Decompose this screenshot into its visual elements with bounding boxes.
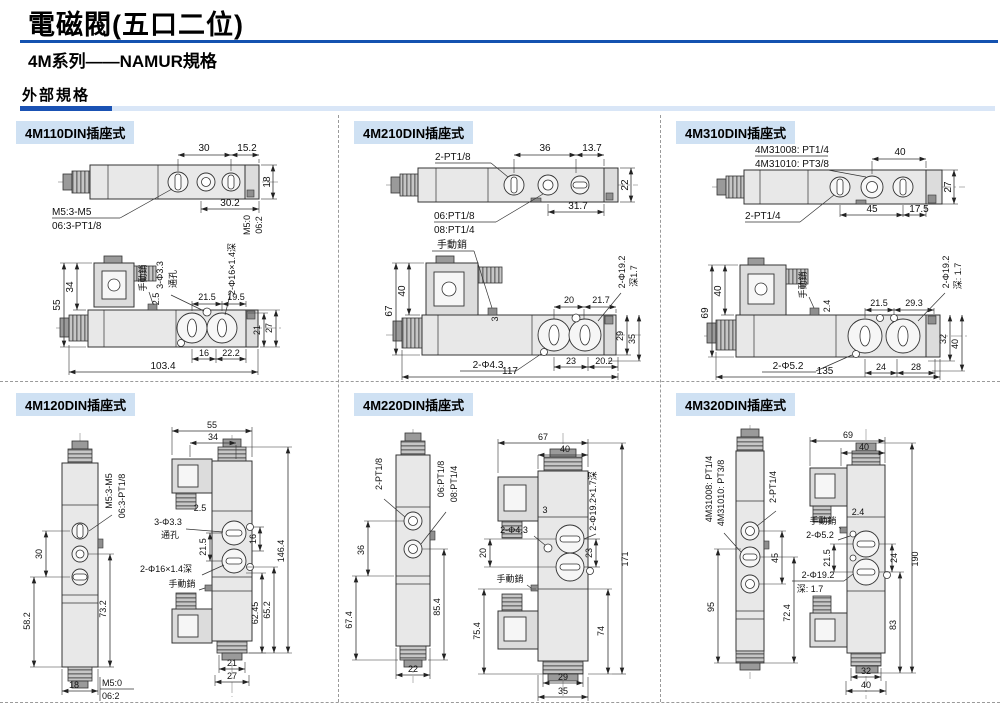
- panel-label-4M110: 4M110DIN插座式: [16, 121, 134, 144]
- counterbore-depth-label: 深1.7: [629, 265, 639, 287]
- dim: 65.2: [262, 601, 272, 619]
- dim: 73.2: [98, 600, 108, 618]
- p5-front-view: 2-PT1/8 06:PT1/8 08:PT1/4 36 67.4 85.4 2…: [344, 429, 459, 683]
- dim: 146.4: [276, 540, 286, 563]
- dim: 3: [490, 316, 500, 321]
- hole-label: 2-Φ5.2: [773, 361, 804, 372]
- port-label: 4M31010: PT3/8: [755, 159, 829, 170]
- counterbore-depth-label: 深: 1.7: [797, 584, 824, 594]
- dim: 62.45: [250, 602, 260, 625]
- dim: 34: [65, 281, 76, 293]
- dim: 16: [199, 348, 209, 358]
- port-label: 06:PT1/8: [434, 211, 475, 222]
- dim: 21.5: [198, 292, 216, 302]
- panel-4M320: 4M31008: PT1/4 4M31010: PT3/8 2-PT1/4 45…: [660, 381, 1000, 703]
- counterbore-label: 2-Φ16×1.4深: [140, 564, 192, 574]
- counterbore-label: 2-Φ16×1.4深: [227, 243, 237, 295]
- panel-label-4M310: 4M310DIN插座式: [676, 121, 795, 144]
- dim: 29.3: [905, 298, 923, 308]
- dim: 23: [566, 356, 576, 366]
- dim: 21.5: [822, 549, 832, 567]
- dim: 36: [539, 143, 551, 154]
- port-label: M5:3-M5: [104, 473, 114, 509]
- dim: 21.5: [870, 298, 888, 308]
- dim: 67: [538, 432, 548, 442]
- dim: 17.5: [909, 204, 929, 215]
- port-label: 2-PT1/4: [745, 211, 781, 222]
- dim: 15.2: [237, 143, 257, 154]
- dim: 3: [542, 505, 547, 515]
- dim: 40: [861, 680, 871, 690]
- port-label: 2-PT1/4: [768, 471, 778, 503]
- dim: 55: [207, 420, 217, 430]
- port-label: 06:2: [254, 216, 264, 234]
- hole-label: 通孔: [168, 270, 178, 288]
- dim: 85.4: [432, 598, 442, 616]
- dim: 2.4: [852, 507, 865, 517]
- dim: 27: [264, 323, 274, 333]
- dim: 29: [558, 672, 568, 682]
- port-label: 06:3-PT1/8: [52, 221, 102, 232]
- counterbore-label: 2-Φ19.2: [802, 570, 835, 580]
- panel-label-4M320: 4M320DIN插座式: [676, 393, 795, 416]
- panel-label-4M210: 4M210DIN插座式: [354, 121, 473, 144]
- port-label: 2-PT1/8: [374, 458, 384, 490]
- dim: 21: [252, 325, 262, 335]
- dim: 22: [408, 664, 418, 674]
- dim: 103.4: [150, 361, 175, 372]
- p6-side-view: 69 40 190 2.4 手動銷 2-Φ5.2 21.5 24 83 2-Φ1…: [792, 429, 920, 699]
- dim: 35: [558, 686, 568, 696]
- port-label: 06:2: [102, 691, 120, 701]
- dim: 34: [208, 432, 218, 442]
- dim: 83: [888, 620, 898, 630]
- p3-side-view: 手動銷 69 40 2.4 21.5 29.3 2-Φ19.2 深: 1.7 3…: [700, 256, 970, 380]
- port-label: 4M31008: PT1/4: [704, 456, 714, 523]
- dim: 40: [713, 285, 724, 297]
- manual-override-label: 手動銷: [809, 515, 836, 526]
- port-label: 06:PT1/8: [436, 461, 446, 498]
- dim: 30: [34, 549, 44, 559]
- dim: 2.4: [822, 300, 832, 313]
- panel-4M210: 2-PT1/8 36 13.7 22 06:PT1/8 08:PT1/4 31.…: [338, 115, 660, 381]
- panel-4M210-drawing: 2-PT1/8 36 13.7 22 06:PT1/8 08:PT1/4 31.…: [338, 115, 660, 381]
- dim: 69: [700, 307, 711, 319]
- dim: 20: [564, 295, 574, 305]
- dim: 2.5: [151, 293, 161, 306]
- panel-4M310: 4M31008: PT1/4 4M31010: PT3/8 40 27 2-PT…: [660, 115, 1000, 381]
- p4-front-view: M5:3-M5 06:3-PT1/8 30 58.2 73.2 18 M5:0 …: [22, 433, 134, 701]
- p1-side-view: 55 34 手動銷 3-Φ3.3 通孔 2-Φ16×1.4深 21.5 19.5…: [52, 243, 284, 375]
- p3-top-view: 4M31008: PT1/4 4M31010: PT3/8 40 27 2-PT…: [712, 145, 965, 222]
- panel-4M220: 2-PT1/8 06:PT1/8 08:PT1/4 36 67.4 85.4 2…: [338, 381, 660, 703]
- dim: 13.7: [582, 143, 602, 154]
- counterbore-label: 2-Φ19.2×1.7深: [588, 471, 598, 530]
- dim: 40: [950, 339, 960, 349]
- p1-top-view: 30 15.2 18 30.2 M5:0 06:2 M5:3-M5 06:3-P…: [52, 143, 280, 235]
- dim: 67.4: [344, 611, 354, 629]
- panel-4M220-drawing: 2-PT1/8 06:PT1/8 08:PT1/4 36 67.4 85.4 2…: [338, 381, 660, 703]
- dim: 23: [584, 548, 594, 558]
- dim: 32: [861, 666, 871, 676]
- series-subtitle: 4M系列——NAMUR規格: [28, 47, 217, 72]
- hole-label: 3-Φ3.3: [155, 261, 165, 289]
- dim: 35: [627, 334, 637, 344]
- hole-label: 3-Φ3.3: [154, 517, 182, 527]
- p2-top-view: 2-PT1/8 36 13.7 22 06:PT1/8 08:PT1/4 31.…: [386, 143, 638, 236]
- dim: 45: [770, 553, 780, 563]
- dim: 72.4: [782, 604, 792, 622]
- dim: 28: [911, 362, 921, 372]
- dim: 31.7: [568, 201, 588, 212]
- section-underline-bar: [20, 106, 995, 111]
- section-underline-accent: [20, 106, 112, 111]
- panel-4M320-drawing: 4M31008: PT1/4 4M31010: PT3/8 2-PT1/4 45…: [660, 381, 1000, 703]
- dim: 2.5: [194, 503, 207, 513]
- dim: 75.4: [472, 622, 482, 640]
- dim: 18: [69, 680, 79, 690]
- dim: 55: [52, 299, 63, 311]
- port-label: M5:3-M5: [52, 207, 92, 218]
- page-title: 電磁閥(五口二位): [28, 3, 244, 42]
- port-label: 4M31010: PT3/8: [716, 460, 726, 527]
- dim: 36: [356, 545, 366, 555]
- dim: 69: [843, 430, 853, 440]
- dim: 18: [262, 176, 273, 188]
- dim: 40: [397, 285, 408, 297]
- manual-override-label: 手動銷: [437, 238, 467, 251]
- panel-4M110: 30 15.2 18 30.2 M5:0 06:2 M5:3-M5 06:3-P…: [0, 115, 338, 381]
- dim: 117: [502, 366, 518, 377]
- dim: 32: [938, 334, 948, 344]
- title-rule: [20, 40, 998, 43]
- panel-label-4M220: 4M220DIN插座式: [354, 393, 473, 416]
- p2-side-view: 手動銷 67 40 3 20 21.7 2-Φ19.2 深1.7 29 35 2…: [384, 238, 641, 380]
- manual-override-label: 手動銷: [168, 578, 195, 589]
- port-label: M5:0: [102, 678, 122, 688]
- dim: 27: [227, 671, 237, 681]
- dim: 40: [560, 444, 570, 454]
- dim: 21: [227, 658, 237, 668]
- port-label: 4M31008: PT1/4: [755, 145, 829, 156]
- panel-4M120-drawing: M5:3-M5 06:3-PT1/8 30 58.2 73.2 18 M5:0 …: [0, 381, 338, 703]
- hole-label: 2-Φ4.3: [473, 360, 504, 371]
- manual-override-label: 手動銷: [797, 271, 808, 298]
- dim: 19.5: [227, 292, 245, 302]
- p5-side-view: 67 40 2-Φ19.2×1.7深 3 2-Φ4.3 20 手動銷 75.4 …: [472, 432, 630, 701]
- dim: 16: [248, 534, 258, 544]
- port-label: 08:PT1/4: [449, 466, 459, 503]
- dim: 171: [620, 551, 630, 566]
- dim: 20: [478, 548, 488, 558]
- dim: 22: [620, 179, 631, 191]
- hole-label: 2-Φ5.2: [806, 530, 834, 540]
- dim: 45: [866, 204, 878, 215]
- manual-override-label: 手動銷: [496, 573, 523, 584]
- dim: 40: [894, 147, 906, 158]
- dim: 135: [817, 366, 834, 377]
- dim: 58.2: [22, 612, 32, 630]
- dim: 95: [706, 602, 716, 612]
- dim: 29: [615, 331, 625, 341]
- dim: 27: [943, 181, 954, 193]
- manual-override-label: 手動銷: [137, 264, 148, 291]
- section-heading: 外部規格: [22, 84, 90, 105]
- p4-side-view: 55 34 2.5 3-Φ3.3 通孔 21.5 16 2-Φ16×1.4深 手…: [140, 420, 292, 697]
- panel-label-4M120: 4M120DIN插座式: [16, 393, 135, 416]
- port-label: 06:3-PT1/8: [117, 474, 127, 519]
- dim: 67: [384, 305, 395, 317]
- dim: 30: [198, 143, 210, 154]
- counterbore-label: 2-Φ19.2: [617, 256, 627, 289]
- port-label: 2-PT1/8: [435, 152, 471, 163]
- hole-label: 通孔: [161, 530, 179, 540]
- panel-4M110-drawing: 30 15.2 18 30.2 M5:0 06:2 M5:3-M5 06:3-P…: [0, 115, 338, 381]
- hole-label: 2-Φ4.3: [500, 525, 528, 535]
- dim: 30.2: [220, 198, 240, 209]
- dim: 22.2: [222, 348, 240, 358]
- dim: 40: [859, 442, 869, 452]
- panel-4M120: M5:3-M5 06:3-PT1/8 30 58.2 73.2 18 M5:0 …: [0, 381, 338, 703]
- dim: 190: [910, 551, 920, 566]
- dim: 21.5: [198, 538, 208, 556]
- p6-front-view: 4M31008: PT1/4 4M31010: PT3/8 2-PT1/4 45…: [704, 425, 798, 679]
- dim: 21.7: [592, 295, 610, 305]
- dim: 74: [596, 626, 606, 636]
- counterbore-depth-label: 深: 1.7: [953, 263, 963, 290]
- dim: 24: [876, 362, 886, 372]
- counterbore-label: 2-Φ19.2: [941, 256, 951, 289]
- dim: 24: [889, 553, 899, 563]
- dim: 20.2: [595, 356, 613, 366]
- port-label: M5:0: [242, 215, 252, 235]
- port-label: 08:PT1/4: [434, 225, 475, 236]
- panel-4M310-drawing: 4M31008: PT1/4 4M31010: PT3/8 40 27 2-PT…: [660, 115, 1000, 381]
